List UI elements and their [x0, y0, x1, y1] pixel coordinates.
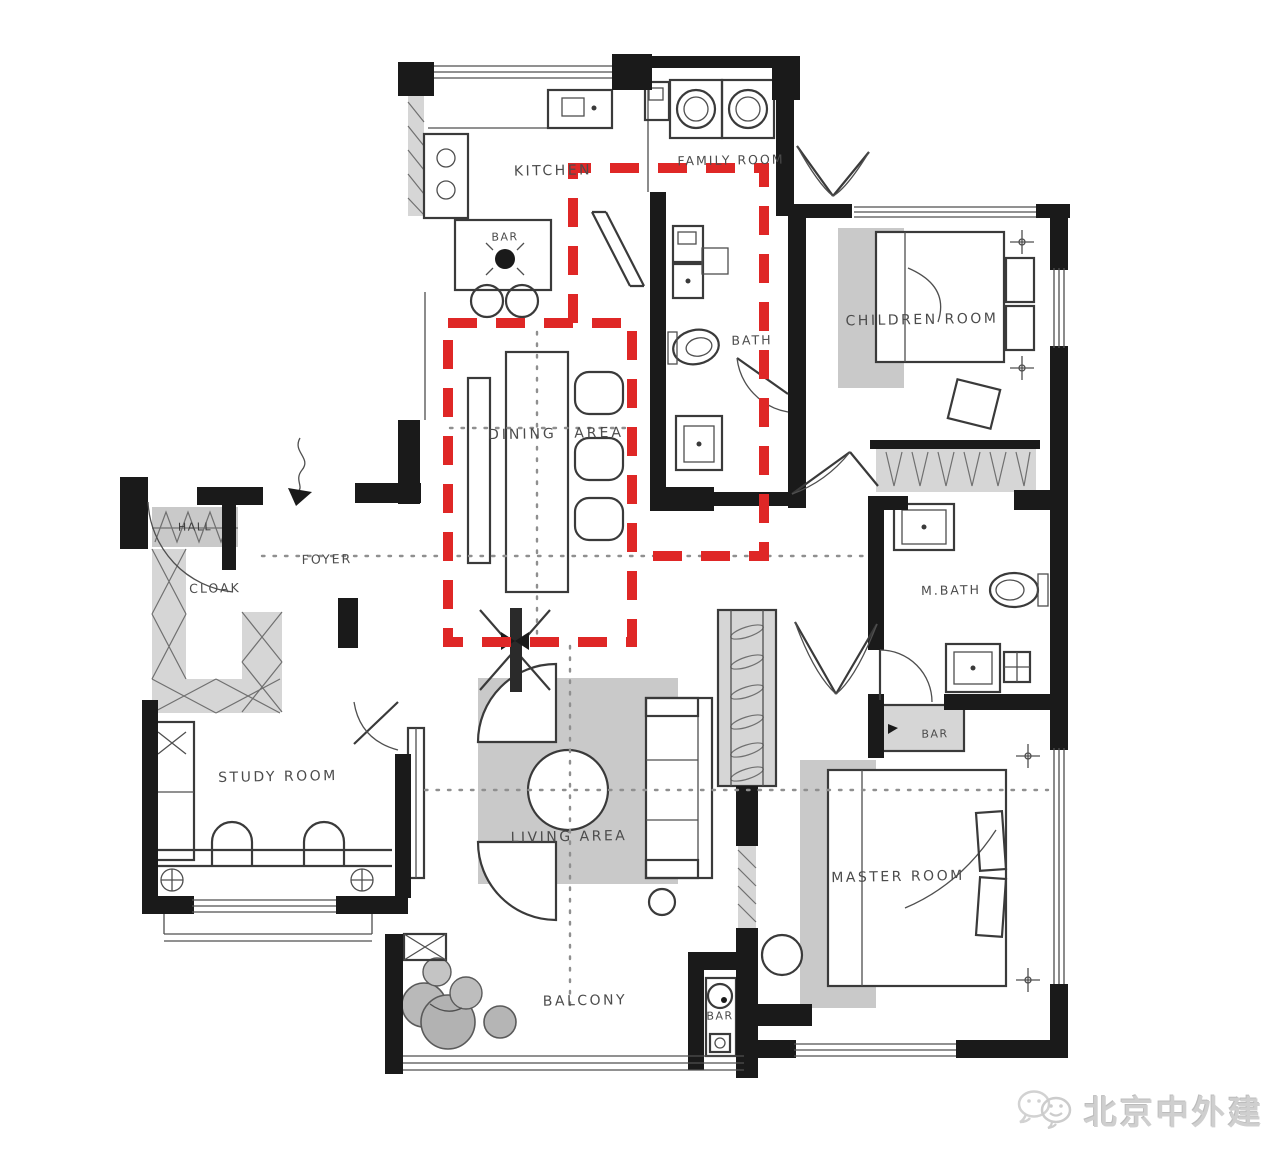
- room-label-balcony: BALCONY: [543, 992, 628, 1009]
- room-label-hall: HALL: [178, 520, 212, 534]
- room-label-bar-mbath: BAR: [921, 727, 948, 740]
- room-label-family-room: FAMILY ROOM: [677, 152, 784, 169]
- room-label-cloak: CLOAK: [189, 580, 241, 596]
- wechat-icon: [1014, 1086, 1076, 1134]
- room-label-bath: BATH: [731, 332, 772, 348]
- room-label-living-area: LIVING AREA: [511, 828, 628, 846]
- room-label-bar-balcony: BAR: [706, 1009, 733, 1022]
- room-label-children-room: CHILDREN ROOM: [845, 311, 998, 330]
- watermark: 北京中外建: [1014, 1086, 1264, 1134]
- floor-plan-image: KITCHEN FAMILY ROOM BAR BATH CHILDREN RO…: [0, 0, 1280, 1160]
- toilet-icon: [668, 326, 722, 369]
- room-label-kitchen: KITCHEN: [514, 162, 592, 179]
- room-label-study-room: STUDY ROOM: [218, 768, 338, 786]
- room-label-m-bath: M.BATH: [921, 582, 981, 598]
- plant-icon: [402, 958, 516, 1049]
- toilet-icon: [990, 573, 1048, 607]
- ceiling-light-icon: [161, 869, 373, 891]
- entrance-arrow-icon: [298, 438, 305, 492]
- watermark-text: 北京中外建: [1084, 1086, 1264, 1134]
- room-label-foyer: FOYER: [302, 551, 353, 567]
- ceiling-light-icon: [1016, 744, 1040, 992]
- room-label-bar-kitchen: BAR: [491, 230, 518, 243]
- furniture: [152, 80, 1048, 1056]
- room-label-master-room: MASTER ROOM: [831, 868, 965, 886]
- room-label-dining-area: DINING AREA: [488, 425, 624, 443]
